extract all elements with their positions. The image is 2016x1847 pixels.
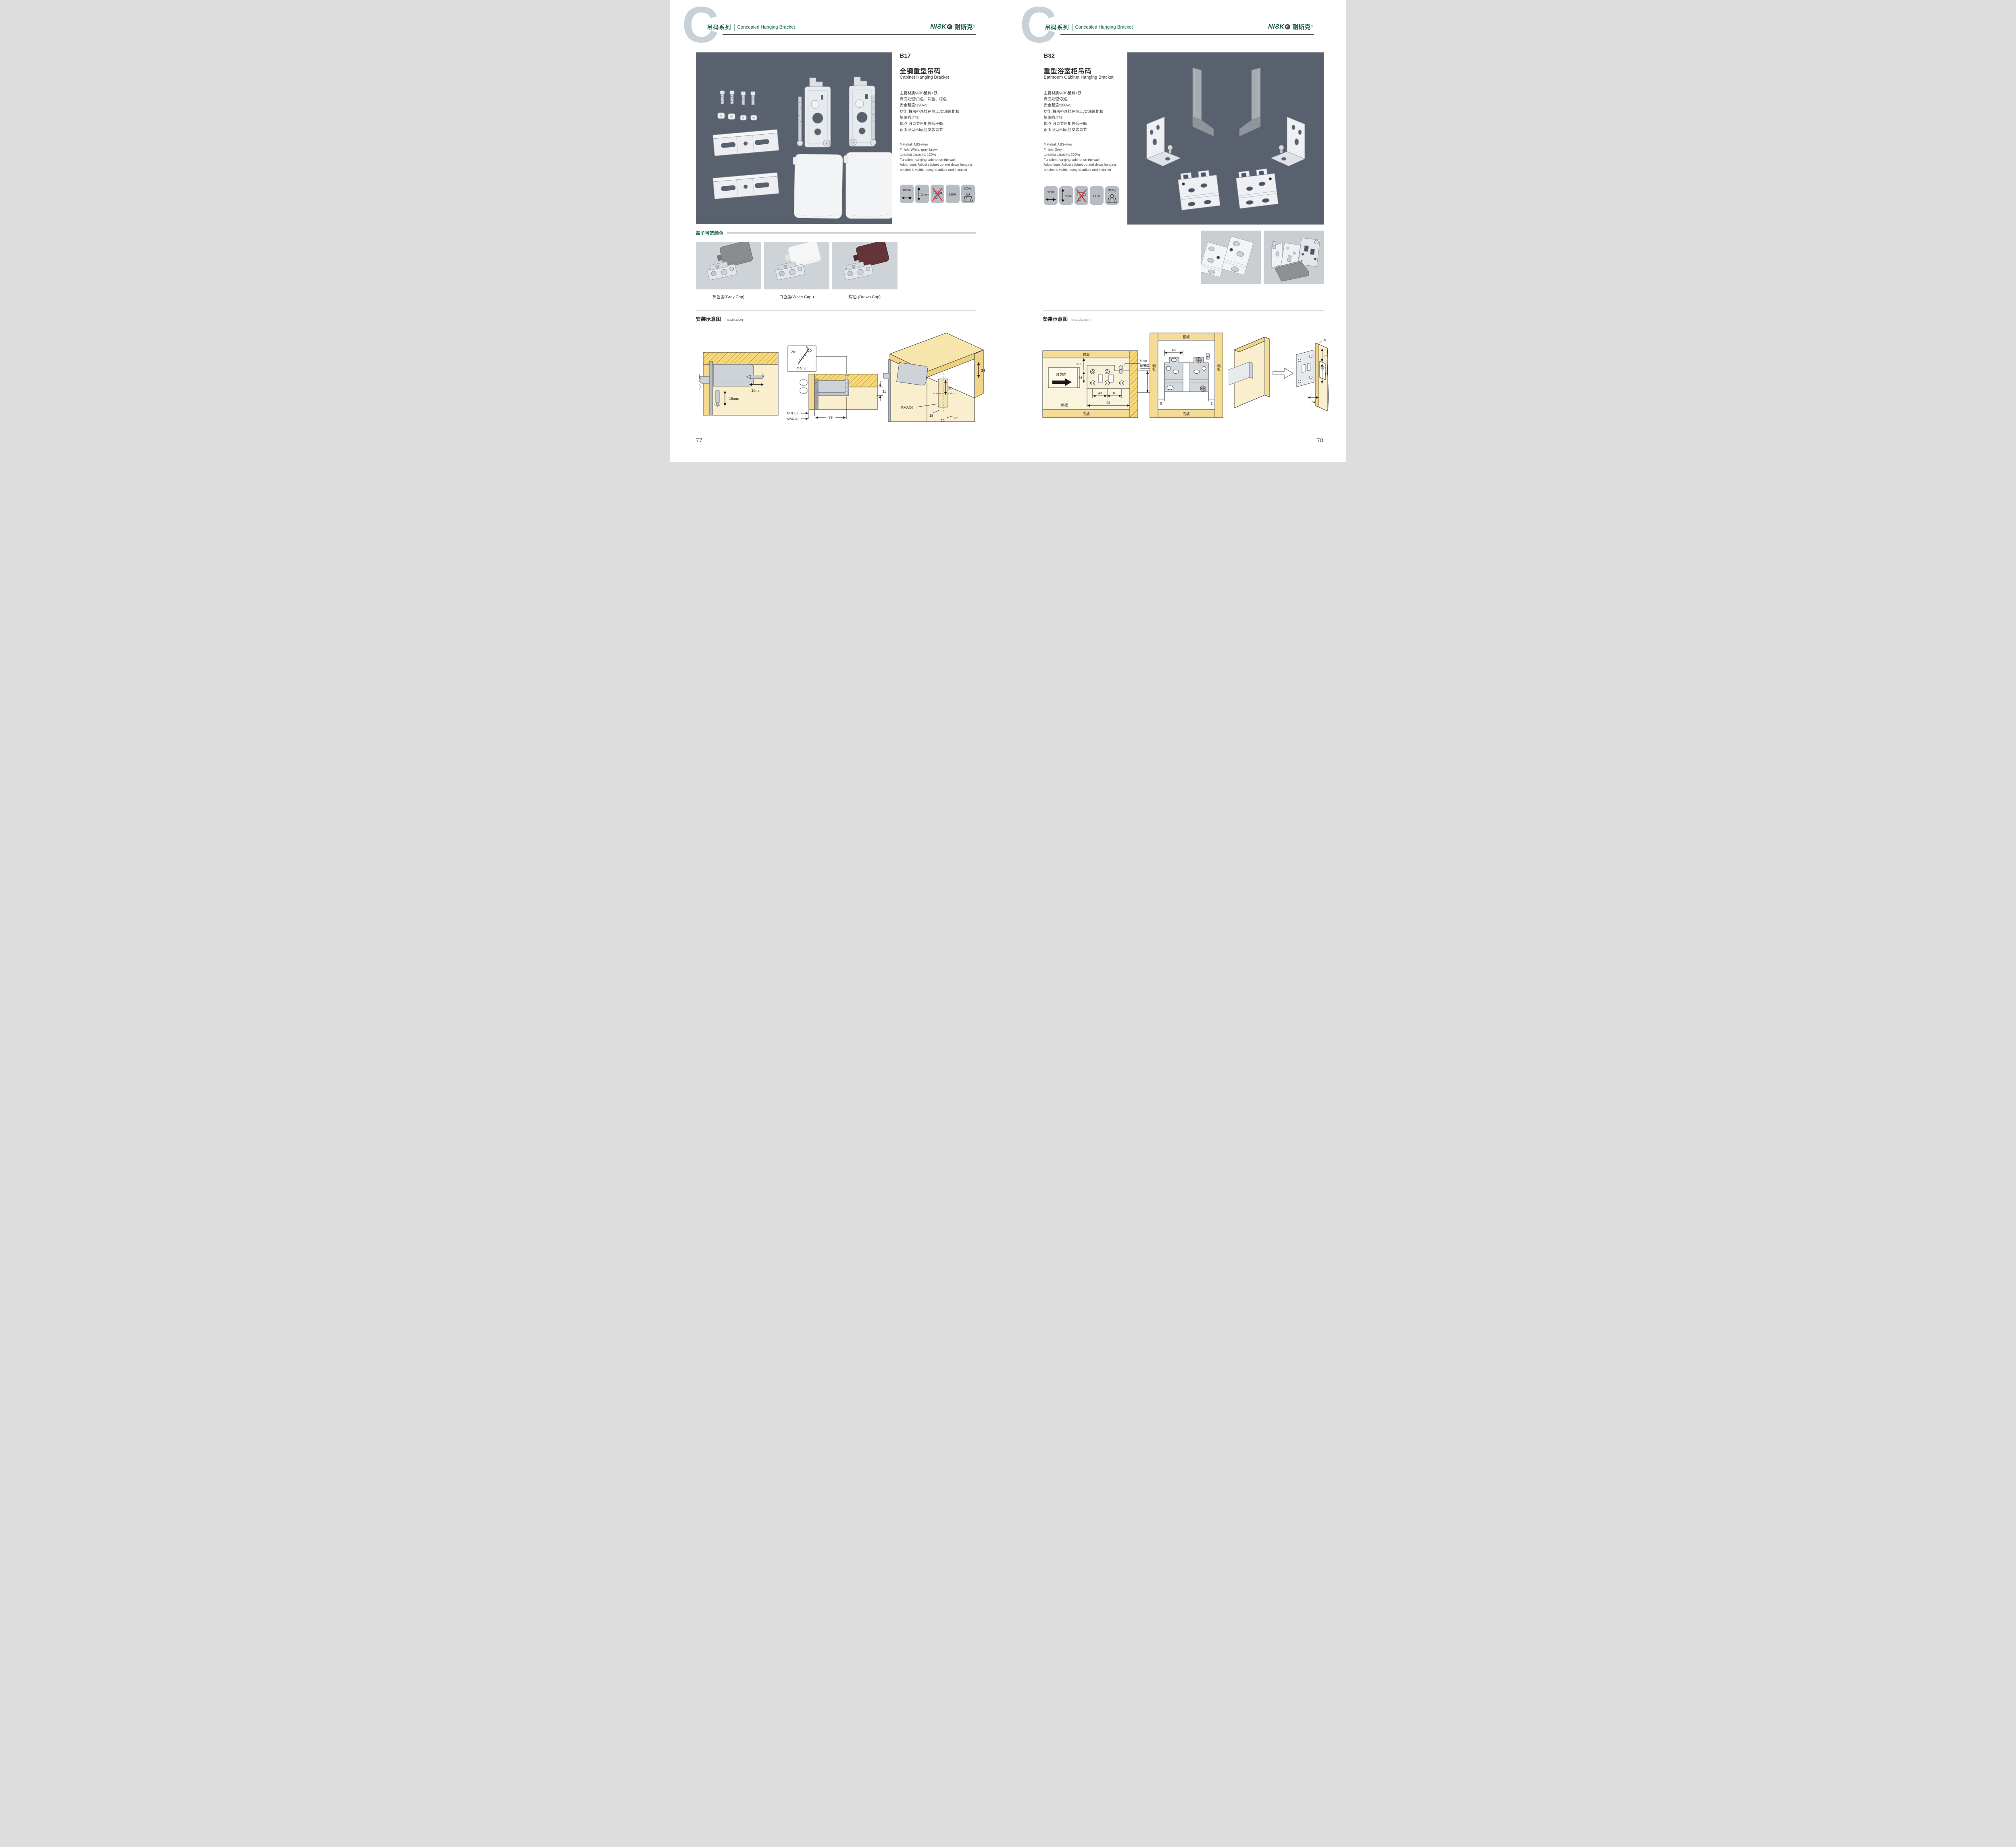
series-title-zh: 吊码系列 bbox=[707, 23, 731, 31]
product-code: B17 bbox=[900, 52, 911, 59]
product-photo-b17-illustration bbox=[696, 52, 892, 224]
svg-text:侧板: 侧板 bbox=[1152, 364, 1156, 372]
install-diagram-front-view: 侧板 侧板 顶板 底板 48 80 5 5 bbox=[1149, 332, 1224, 419]
feature-icon-row: 4mm 8mm LGA 200Kg bbox=[1044, 186, 1120, 205]
svg-text:RMAX4: RMAX4 bbox=[901, 406, 913, 410]
install-diagram-side-section: 10mm 15mm bbox=[698, 346, 780, 420]
cap-photo-brown bbox=[832, 242, 898, 289]
product-photo-b17 bbox=[696, 52, 892, 224]
product-title-zh: 全钢重型吊码 bbox=[900, 66, 941, 75]
header-separator bbox=[1072, 24, 1073, 31]
spec-line: 主要材质:ABS塑料+铁 bbox=[900, 90, 981, 96]
brand-logo-cn: 耐斯克 bbox=[1292, 23, 1310, 31]
load-capacity-icon: 200Kg bbox=[1105, 186, 1119, 205]
svg-text:40: 40 bbox=[1112, 391, 1116, 395]
caps-section-title: 盖子可选颜色 bbox=[696, 230, 724, 236]
spec-line: Loading capacity: 120kg bbox=[900, 152, 981, 157]
caps-section-rule bbox=[727, 233, 976, 233]
page-number: 78 bbox=[1317, 438, 1324, 444]
product-title-en: Bathroom Cabinet Hanging Bracket bbox=[1044, 75, 1114, 80]
lga-certification-icon: LGA bbox=[946, 185, 960, 203]
registered-mark: ® bbox=[1311, 25, 1313, 28]
cap-photo-gray bbox=[696, 242, 761, 289]
installation-title-zh: 安装示意图 bbox=[696, 316, 721, 322]
product-specs-en: Material: ABS+iron Finish: White, gray, … bbox=[900, 142, 981, 173]
svg-text:Φ4mm: Φ4mm bbox=[796, 366, 807, 370]
svg-text:18: 18 bbox=[929, 414, 933, 418]
install-diagram-screw-section: 2x Φ4mm 13 MIN.10 MAX.30 78 bbox=[785, 343, 886, 421]
spec-line: 功能:将吊柜悬挂在墙上,实现吊柜和 bbox=[900, 109, 981, 115]
spec-line: Finish: White, gray, brown bbox=[900, 147, 981, 152]
spec-line: 墙体的连接 bbox=[900, 115, 981, 121]
installation-header: 安装示意图Installation bbox=[1043, 315, 1090, 323]
no-drill-icon bbox=[931, 185, 944, 203]
installation-title-zh: 安装示意图 bbox=[1043, 316, 1068, 322]
spec-line: Finish: Grey bbox=[1044, 147, 1127, 152]
spec-line: 功能:将吊柜悬挂在墙上,实现吊柜和 bbox=[1044, 109, 1127, 115]
svg-text:98: 98 bbox=[1106, 401, 1110, 405]
catalog-page-78: C 吊码系列 Concealed Hanging Bracket NIƧK 耐斯… bbox=[1008, 0, 1346, 462]
lga-certification-icon: LGA bbox=[1090, 186, 1104, 205]
spec-line: 主要材质:ABS塑料+铁 bbox=[1044, 90, 1127, 96]
svg-text:侧板: 侧板 bbox=[1217, 364, 1221, 372]
svg-text:底板: 底板 bbox=[1183, 412, 1190, 416]
brand-logo-o-icon bbox=[1285, 24, 1290, 29]
header-separator bbox=[734, 24, 735, 31]
svg-text:MAX.30: MAX.30 bbox=[787, 417, 799, 421]
brand-logo: NIƧK 耐斯克 ® bbox=[930, 23, 975, 31]
spec-line: 正面可见吊码,易安装调节 bbox=[900, 127, 981, 133]
product-title-zh: 重型浴室柜吊码 bbox=[1044, 66, 1092, 75]
cap-photo-white bbox=[764, 242, 829, 289]
catalog-page-77: C 吊码系列 Concealed Hanging Bracket NIƧK 耐斯… bbox=[670, 0, 1008, 462]
spec-line: 安全载重:120kg bbox=[900, 102, 981, 108]
cap-label-brown: 棕色 (Brown Cap) bbox=[832, 293, 898, 300]
brand-logo-latin: NIƧK bbox=[930, 23, 946, 31]
spec-line: Advantage: Adjust cabinet up and down ha… bbox=[900, 162, 981, 167]
series-title-zh: 吊码系列 bbox=[1045, 23, 1069, 31]
brand-logo: NIƧK 耐斯克 ® bbox=[1268, 23, 1313, 31]
svg-text:36.5: 36.5 bbox=[1076, 362, 1082, 366]
svg-text:10mm: 10mm bbox=[751, 389, 761, 393]
brand-red-dot-icon bbox=[1287, 26, 1289, 28]
header-rule bbox=[723, 34, 976, 35]
svg-text:顶板: 顶板 bbox=[1183, 335, 1190, 339]
svg-text:装饰盖: 装饰盖 bbox=[1056, 372, 1066, 376]
svg-text:78: 78 bbox=[828, 416, 832, 420]
svg-text:48: 48 bbox=[1172, 348, 1176, 352]
install-diagram-panel-layout: 顶板 底板 装饰盖 36.5 36 40 40 9 bbox=[1042, 350, 1159, 420]
detail-photo-plates bbox=[1201, 231, 1261, 284]
product-specs-zh: 主要材质:ABS塑料+铁 表面处理:灰色 安全载重:200kg 功能:将吊柜悬挂… bbox=[1044, 90, 1127, 133]
svg-text:36: 36 bbox=[1079, 376, 1082, 380]
brand-logo-latin: NIƧK bbox=[1268, 23, 1284, 31]
spec-line: Material: ABS+iron bbox=[900, 142, 981, 147]
caps-section-header: 盖子可选颜色 bbox=[696, 230, 976, 236]
installation-divider bbox=[1043, 310, 1324, 310]
feature-icon-row: 10mm 15mm LGA 120Kg bbox=[900, 185, 977, 203]
product-specs-zh: 主要材质:ABS塑料+铁 表面处理:白色、灰色、棕色 安全载重:120kg 功能… bbox=[900, 90, 981, 133]
spec-line: Function: hanging cabinet on the wall bbox=[900, 157, 981, 162]
brand-red-dot-icon bbox=[949, 26, 951, 28]
svg-text:40: 40 bbox=[1098, 391, 1102, 395]
registered-mark: ® bbox=[973, 25, 975, 28]
svg-text:32: 32 bbox=[948, 386, 952, 390]
installation-header: 安装示意图Installation bbox=[696, 315, 743, 323]
svg-text:5: 5 bbox=[1160, 401, 1162, 406]
spec-line: bracket is visible, easy to adjust and i… bbox=[1044, 167, 1127, 173]
series-title-en: Concealed Hanging Bracket bbox=[737, 25, 795, 30]
cap-label-gray: 灰色盖(Gray Cap) bbox=[696, 293, 761, 300]
width-dimension-icon: 4mm bbox=[1044, 186, 1058, 205]
install-diagram-isometric: 34 32 RMAX4 18 20 32 bbox=[878, 325, 989, 426]
svg-text:18: 18 bbox=[1322, 338, 1326, 342]
svg-text:MIN.10: MIN.10 bbox=[787, 412, 798, 415]
installation-title-en: Installation bbox=[725, 318, 743, 322]
page-header-title: 吊码系列 Concealed Hanging Bracket bbox=[707, 23, 795, 31]
spec-line: 表面处理:白色、灰色、棕色 bbox=[900, 96, 981, 102]
spec-line: Material: ABS+iron bbox=[1044, 142, 1127, 147]
svg-text:2x: 2x bbox=[791, 350, 795, 354]
svg-text:47: 47 bbox=[1325, 373, 1328, 376]
height-dimension-icon: 8mm bbox=[1059, 186, 1073, 205]
detail-photo-bracket-set bbox=[1264, 231, 1324, 284]
product-specs-en: Material: ABS+iron Finish: Grey Loading … bbox=[1044, 142, 1127, 173]
spec-line: 表面处理:灰色 bbox=[1044, 96, 1127, 102]
spec-line: Loading capacity: 200kg bbox=[1044, 152, 1127, 157]
load-capacity-icon: 120Kg bbox=[961, 185, 975, 203]
install-diagram-isometric: 18 35 47 24 bbox=[1228, 327, 1329, 421]
brand-logo-cn: 耐斯克 bbox=[954, 23, 973, 31]
spec-line: Function: hanging cabinet on the wall bbox=[1044, 157, 1127, 162]
page-number: 77 bbox=[696, 438, 703, 444]
svg-text:24: 24 bbox=[1311, 400, 1315, 404]
spec-line: 墙体的连接 bbox=[1044, 115, 1127, 121]
spec-line: 安全载重:200kg bbox=[1044, 102, 1127, 108]
svg-text:8mm: 8mm bbox=[1140, 359, 1147, 363]
header-rule bbox=[1060, 34, 1314, 35]
installation-divider bbox=[696, 310, 976, 310]
svg-text:侧板: 侧板 bbox=[1061, 403, 1068, 407]
svg-text:底板: 底板 bbox=[1083, 412, 1090, 416]
series-title-en: Concealed Hanging Bracket bbox=[1075, 25, 1133, 30]
svg-text:15mm: 15mm bbox=[729, 397, 739, 401]
svg-text:5: 5 bbox=[1210, 401, 1212, 406]
product-code: B32 bbox=[1044, 52, 1055, 59]
height-dimension-icon: 15mm bbox=[915, 185, 929, 203]
cap-label-white: 白色盖(White Cap ) bbox=[764, 293, 829, 300]
width-dimension-icon: 10mm bbox=[900, 185, 914, 203]
spec-line: bracket is visible, easy to adjust and i… bbox=[900, 167, 981, 173]
svg-text:20: 20 bbox=[941, 418, 945, 422]
svg-text:32: 32 bbox=[954, 416, 958, 420]
product-photo-b32 bbox=[1127, 52, 1324, 225]
brand-logo-o-icon bbox=[947, 24, 952, 29]
installation-title-en: Installation bbox=[1071, 318, 1089, 322]
spec-line: Advantage: Adjust cabinet up and down ha… bbox=[1044, 162, 1127, 167]
product-photo-b32-illustration bbox=[1127, 52, 1324, 225]
page-header-title: 吊码系列 Concealed Hanging Bracket bbox=[1045, 23, 1133, 31]
no-drill-icon bbox=[1075, 186, 1088, 205]
spec-line: 优点:可调节吊柜高低平衡 bbox=[1044, 121, 1127, 127]
svg-text:顶板: 顶板 bbox=[1083, 353, 1090, 357]
product-title-en: Cabinet Hanging Bracket bbox=[900, 75, 949, 80]
svg-text:34: 34 bbox=[981, 368, 985, 372]
catalog-spread: C 吊码系列 Concealed Hanging Bracket NIƧK 耐斯… bbox=[670, 0, 1346, 462]
spec-line: 正面可见吊码,易安装调节 bbox=[1044, 127, 1127, 133]
svg-text:35: 35 bbox=[1325, 354, 1328, 358]
spec-line: 优点:可调节吊柜高低平衡 bbox=[900, 121, 981, 127]
